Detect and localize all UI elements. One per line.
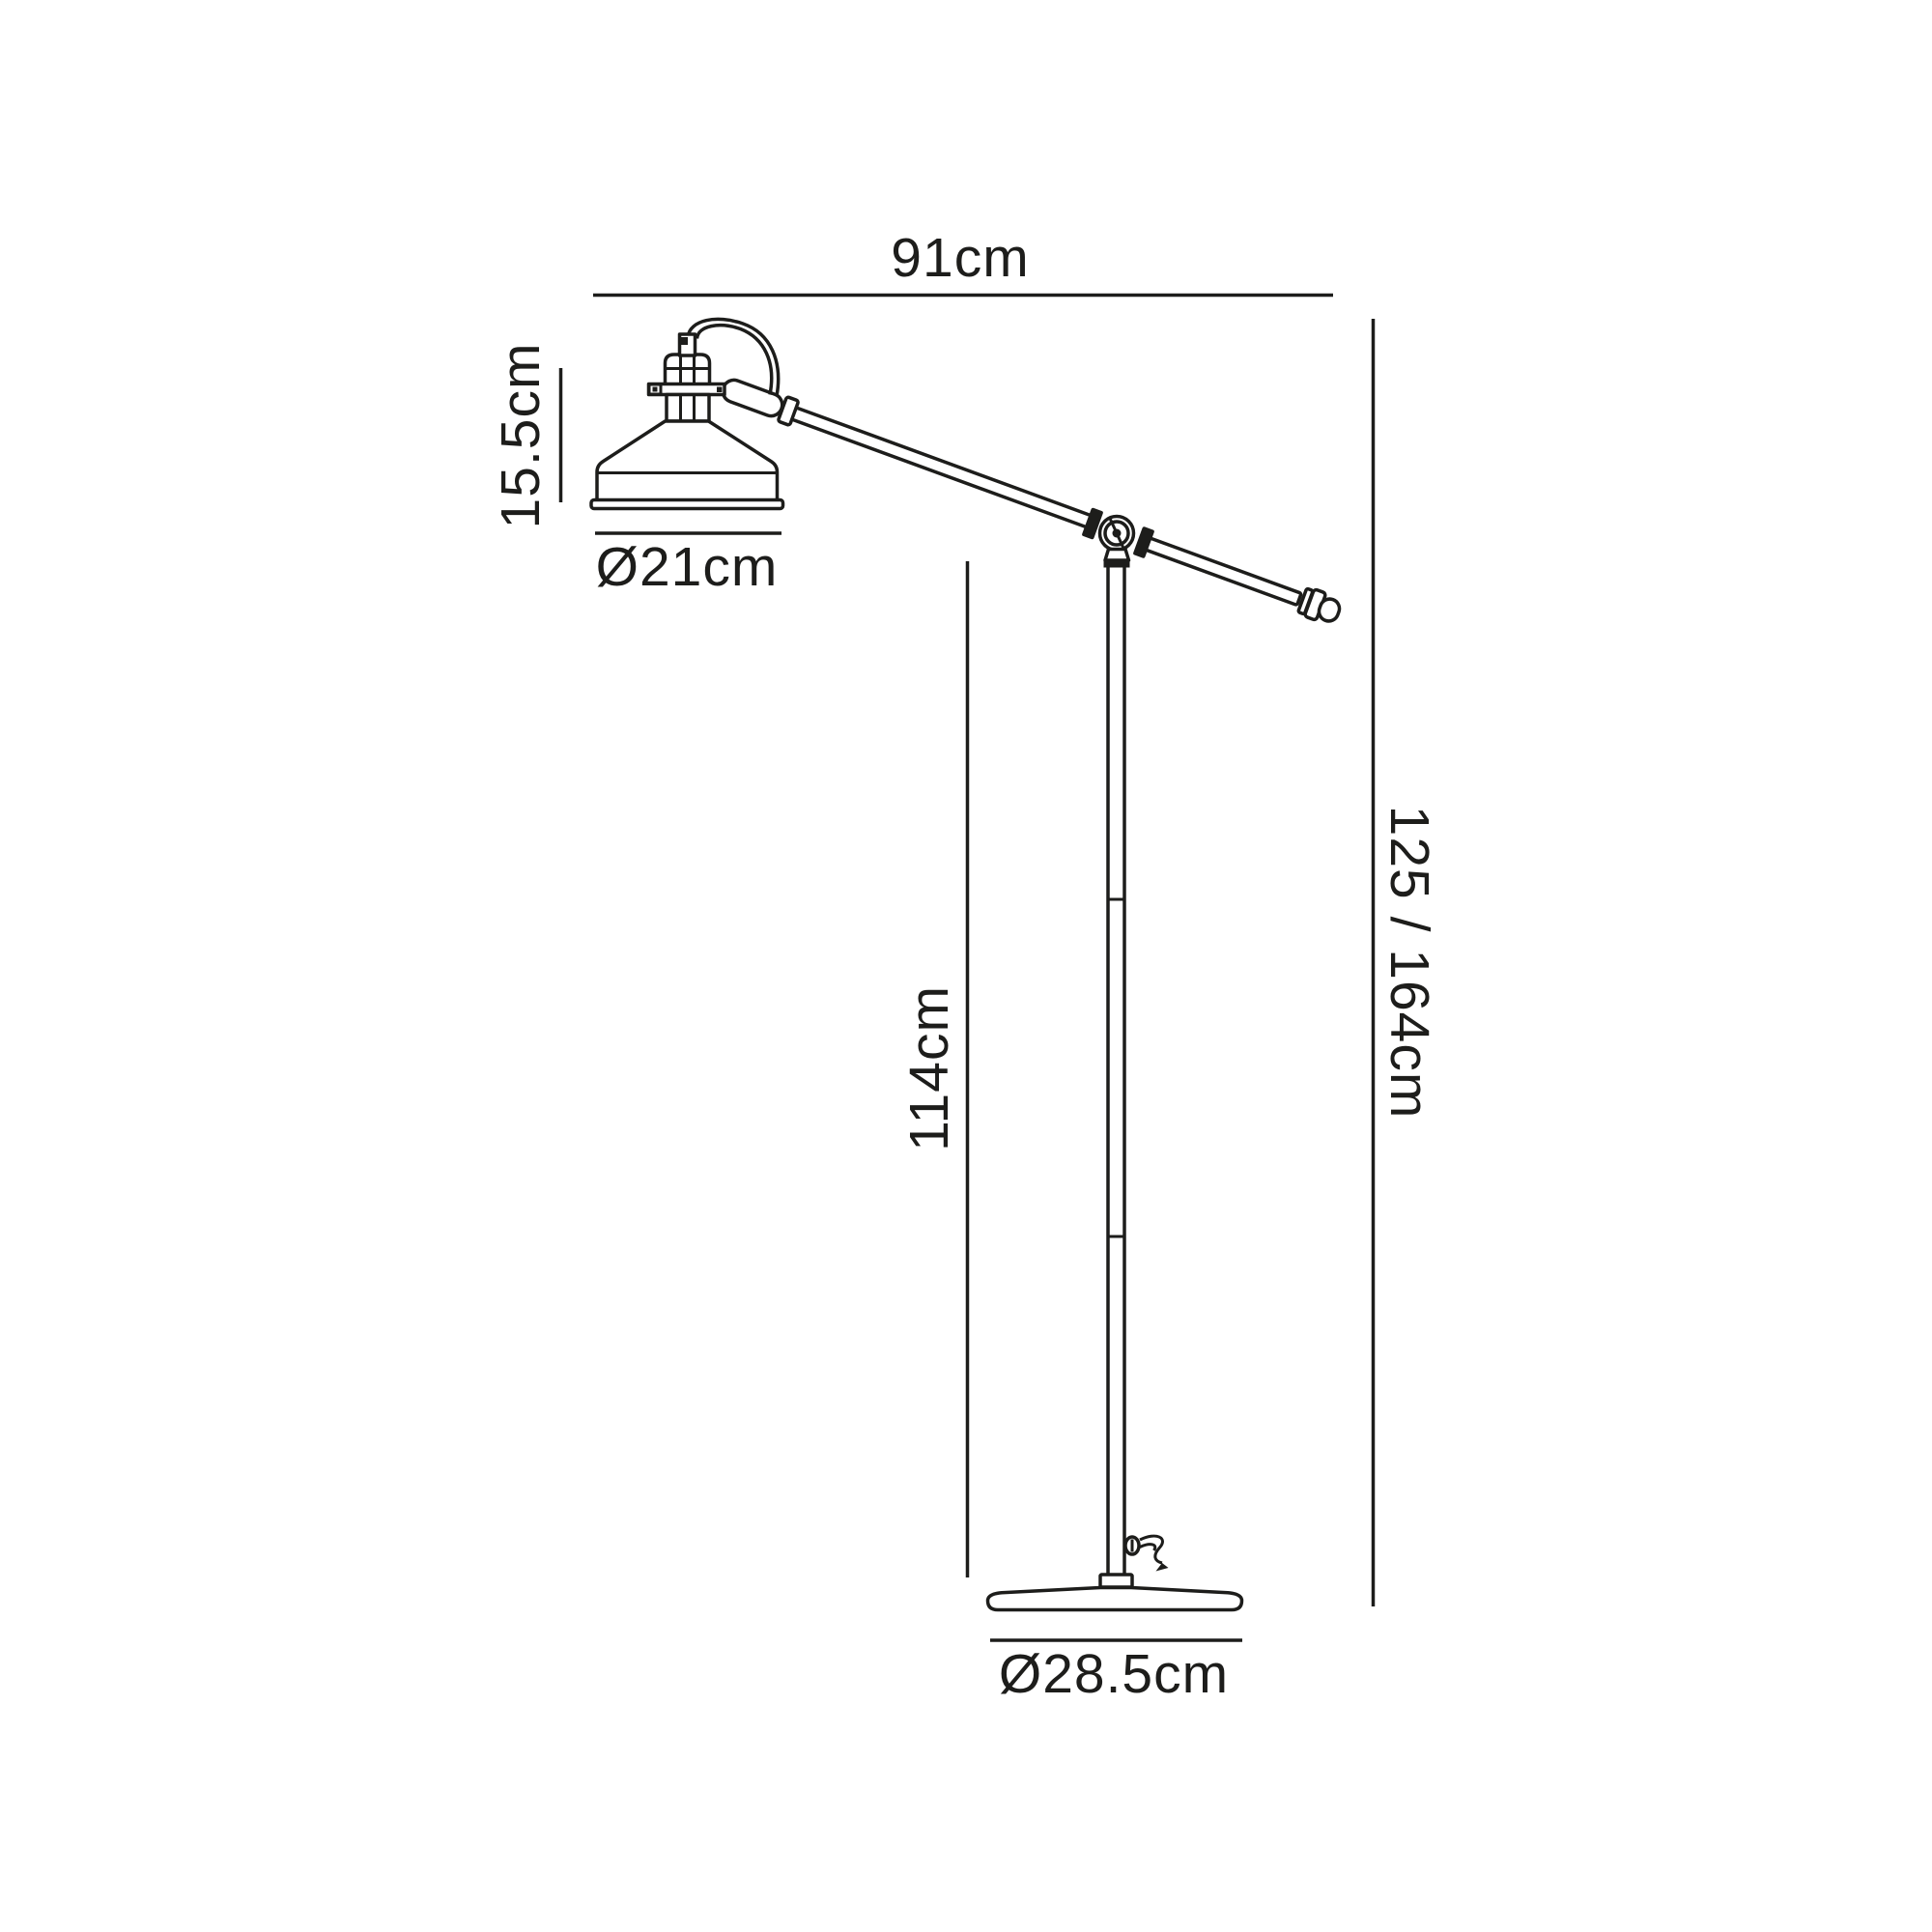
dimension-label-overall-height: 125 / 164cm: [1378, 806, 1440, 1120]
arm-tube-lower: [1145, 538, 1301, 606]
socket-cap-screw: [681, 337, 688, 345]
dimension-label-shade-height: 15.5cm: [490, 343, 552, 529]
shade-neck: [667, 395, 709, 422]
dimension-base-diameter: Ø28.5cm: [990, 1640, 1242, 1705]
pivot-neck: [1105, 550, 1129, 561]
switch-cord-end-arrow: [1156, 1563, 1169, 1572]
dimension-shade-diameter: Ø21cm: [595, 533, 781, 598]
base-profile: [988, 1588, 1242, 1610]
dimension-shade-height: 15.5cm: [490, 343, 561, 529]
lamp-arm: [720, 377, 1342, 624]
dimension-arm-length: 91cm: [593, 227, 1333, 296]
dimension-label-pole-height: 114cm: [898, 985, 960, 1151]
dimension-label-arm-length: 91cm: [891, 227, 1029, 289]
lamp-dimension-diagram-page: 91cm 15.5cm Ø21cm 114cm 125 / 164cm: [0, 0, 1932, 1932]
switch-cord-outer: [1140, 1536, 1163, 1563]
lamp-base: [988, 1588, 1242, 1610]
bracket-screw-right-dot: [717, 387, 723, 393]
floor-lamp-technical-drawing: 91cm 15.5cm Ø21cm 114cm 125 / 164cm: [0, 0, 1932, 1932]
shade-bottom-flange: [591, 500, 783, 509]
arm-pivot-joint: [1100, 517, 1134, 568]
arm-tube-upper: [788, 407, 1093, 528]
dimension-label-shade-diameter: Ø21cm: [596, 536, 779, 598]
bracket-screw-left-dot: [653, 387, 658, 392]
switch-winder: [1125, 1536, 1169, 1571]
lamp-head: [591, 319, 783, 508]
shade-cone: [597, 421, 778, 500]
pivot-neck-band: [1104, 560, 1130, 568]
switch-cord-inner: [1140, 1545, 1155, 1550]
dimension-overall-height: 125 / 164cm: [1374, 319, 1441, 1606]
dimension-pole-height: 114cm: [898, 561, 968, 1577]
dimension-label-base-diameter: Ø28.5cm: [999, 1643, 1229, 1705]
pole-foot-collar: [1100, 1575, 1132, 1587]
lamp-pole: [1100, 567, 1132, 1587]
arm-shade-link: [720, 377, 785, 419]
